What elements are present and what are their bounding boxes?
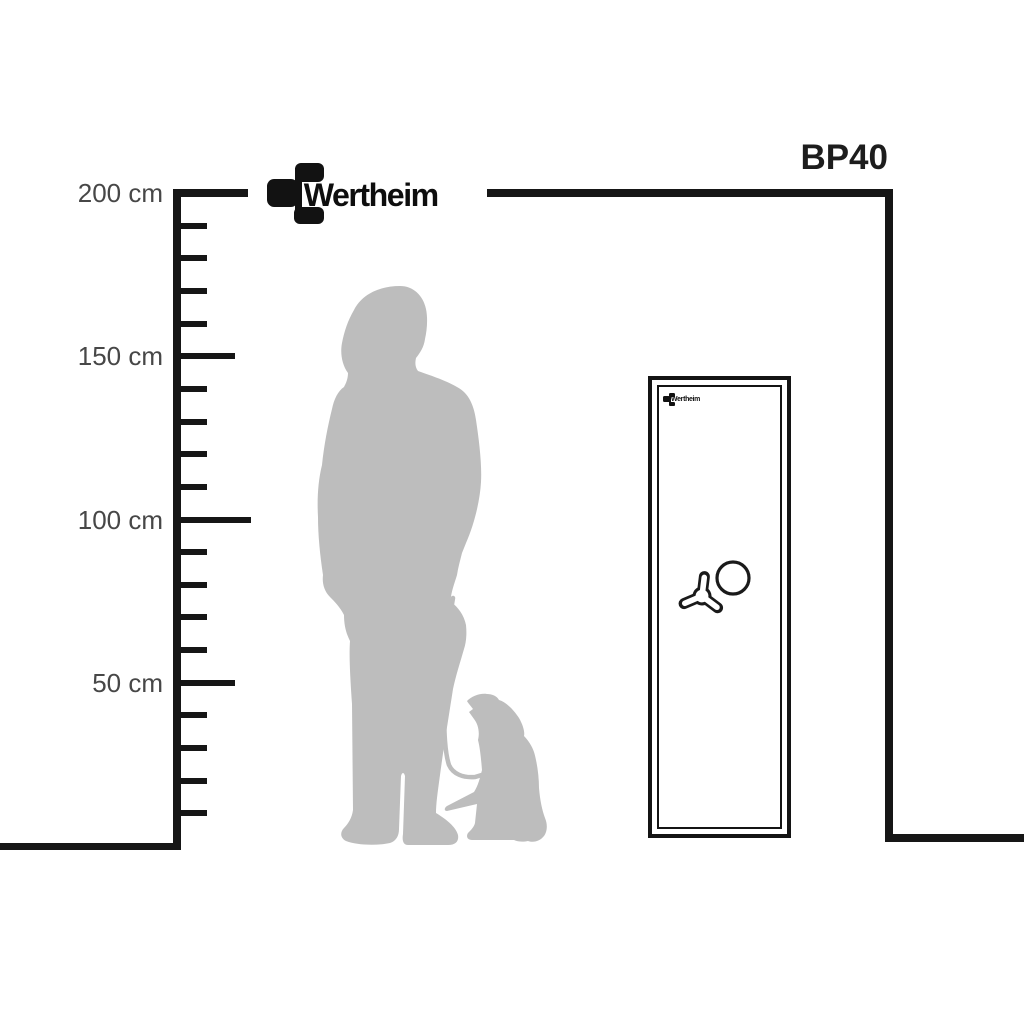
ruler-tick-110cm: [181, 484, 207, 490]
ruler-tick-80cm: [181, 582, 207, 588]
ruler-tick-90cm: [181, 549, 207, 555]
ruler-tick-70cm: [181, 614, 207, 620]
ruler-label-100cm: 100 cm: [0, 504, 163, 536]
size-comparison-diagram: 200 cm150 cm100 cm50 cm Wertheim BP40 We…: [0, 0, 1024, 1024]
safe-hardware: [652, 380, 787, 834]
dial-knob-icon: [717, 562, 749, 594]
ruler-tick-170cm: [181, 288, 207, 294]
ruler-label-50cm: 50 cm: [0, 667, 163, 699]
wall-line: [885, 189, 893, 842]
ruler-label-200cm: 200 cm: [0, 177, 163, 209]
brand-logo-mark-square: [267, 179, 299, 208]
height-line-right-segment: [487, 189, 893, 197]
ruler-tick-140cm: [181, 386, 207, 392]
safe-illustration: Wertheim: [648, 376, 791, 838]
ruler-tick-120cm: [181, 451, 207, 457]
ruler-line: [173, 189, 181, 849]
ruler-tick-30cm: [181, 745, 207, 751]
ruler-tick-10cm: [181, 810, 207, 816]
ruler-tick-50cm: [181, 680, 235, 686]
ruler-tick-100cm: [181, 517, 251, 523]
ruler-tick-190cm: [181, 223, 207, 229]
height-line-left-segment: [173, 189, 248, 197]
ruler-label-150cm: 150 cm: [0, 340, 163, 372]
product-model-label: BP40: [700, 140, 888, 176]
ruler-tick-180cm: [181, 255, 207, 261]
ruler-tick-160cm: [181, 321, 207, 327]
ruler-tick-60cm: [181, 647, 207, 653]
floor-line-right: [885, 834, 1024, 842]
dog-silhouette: [440, 692, 550, 845]
brand-logo-text: Wertheim: [304, 179, 438, 213]
floor-line-left: [0, 843, 181, 850]
ruler-tick-40cm: [181, 712, 207, 718]
ruler-tick-150cm: [181, 353, 235, 359]
ruler-tick-20cm: [181, 778, 207, 784]
ruler-tick-130cm: [181, 419, 207, 425]
